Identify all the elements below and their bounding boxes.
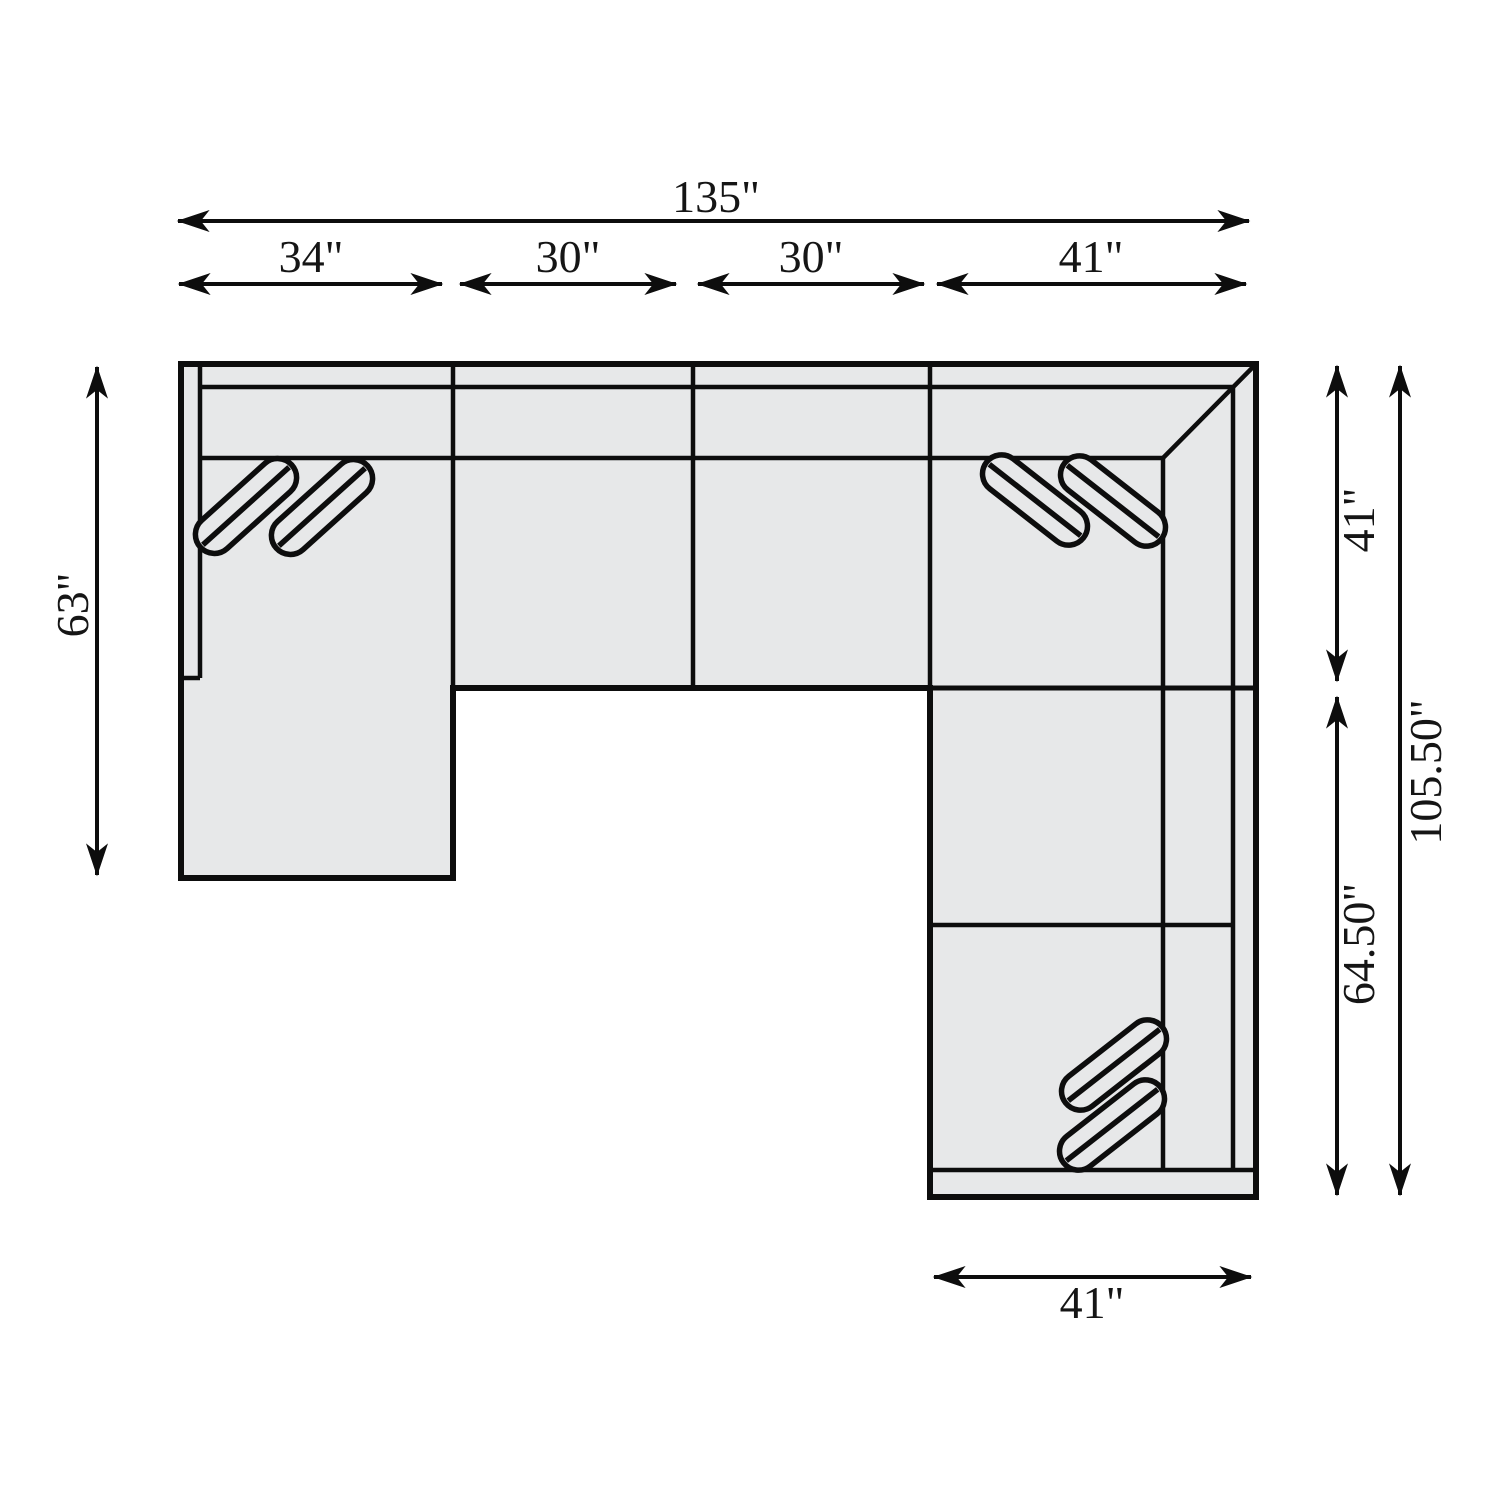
dim-label-top-seg1: 34": [279, 231, 344, 282]
dim-label-right-upper: 41": [1333, 488, 1384, 553]
dim-label-top-seg2: 30": [536, 231, 601, 282]
sofa-dimension-diagram: 135" 34" 30" 30" 41" 63" 41" 64.50" 105.…: [0, 0, 1500, 1500]
dim-label-bottom-width: 41": [1060, 1277, 1125, 1328]
dim-label-top-seg4: 41": [1059, 231, 1124, 282]
dim-label-top-total: 135": [672, 171, 760, 222]
dim-label-right-lower: 64.50": [1333, 883, 1384, 1005]
dim-label-top-seg3: 30": [779, 231, 844, 282]
sofa-body: [181, 364, 1256, 1197]
dim-label-right-total: 105.50": [1400, 699, 1451, 844]
dim-label-left-height: 63": [47, 573, 98, 638]
diagram-canvas: 135" 34" 30" 30" 41" 63" 41" 64.50" 105.…: [0, 0, 1500, 1500]
